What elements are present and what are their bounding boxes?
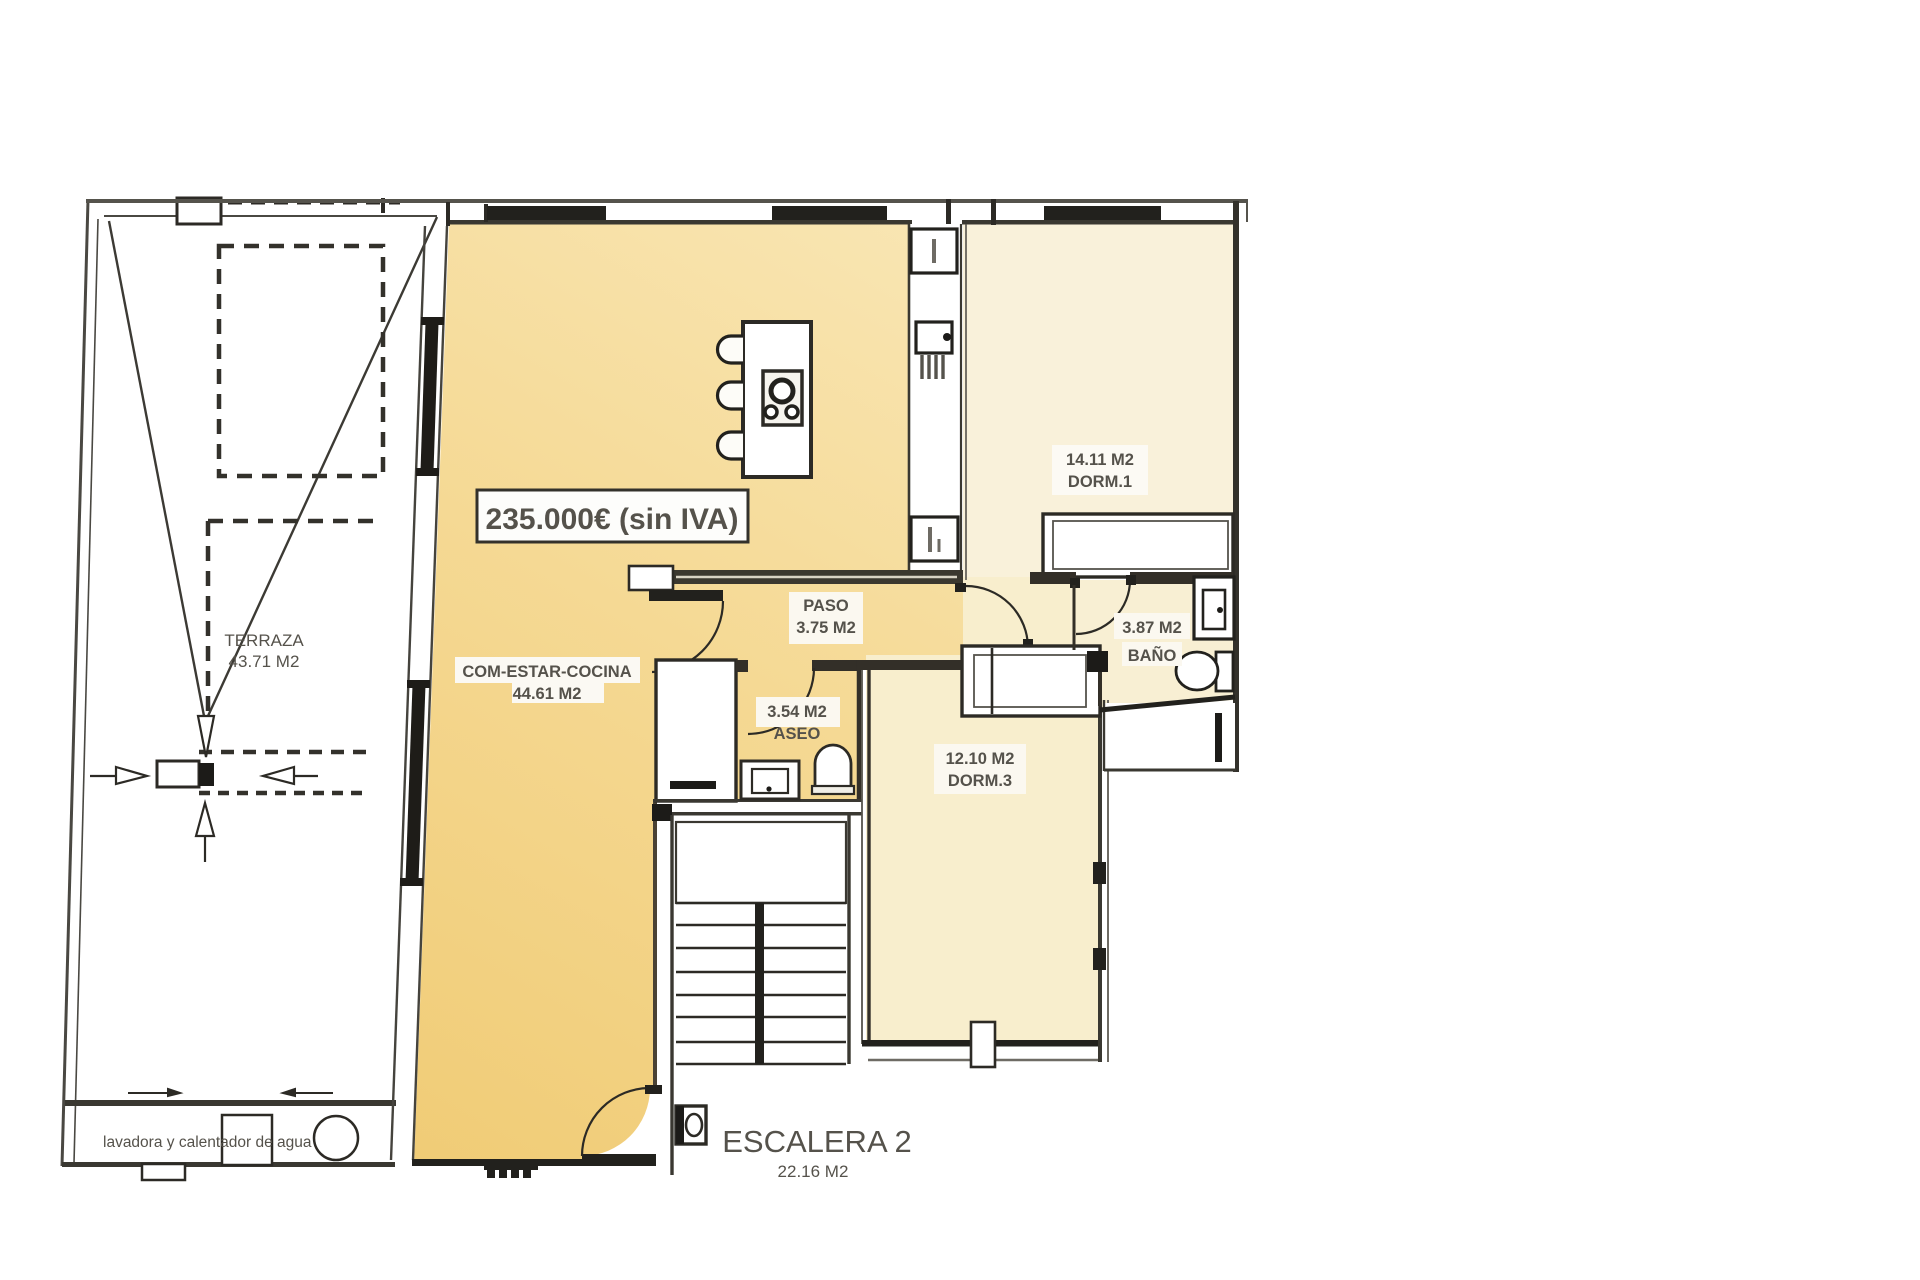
svg-text:DORM.3: DORM.3 [948,772,1012,790]
svg-text:3.87 M2: 3.87 M2 [1122,619,1182,637]
svg-text:22.16 M2: 22.16 M2 [778,1162,849,1181]
svg-text:3.75 M2: 3.75 M2 [796,619,856,637]
svg-text:COM-ESTAR-COCINA: COM-ESTAR-COCINA [462,663,631,681]
svg-text:14.11 M2: 14.11 M2 [1066,451,1134,469]
svg-text:3.54 M2: 3.54 M2 [767,703,827,721]
svg-text:12.10 M2: 12.10 M2 [946,750,1015,768]
svg-text:43.71 M2: 43.71 M2 [229,652,300,671]
svg-text:TERRAZA: TERRAZA [224,631,304,650]
svg-text:ESCALERA 2: ESCALERA 2 [722,1124,912,1159]
svg-text:BAÑO: BAÑO [1128,645,1177,665]
svg-text:PASO: PASO [803,597,849,615]
svg-text:lavadora y calentador de agua: lavadora y calentador de agua [103,1134,312,1151]
svg-text:44.61 M2: 44.61 M2 [513,685,582,703]
svg-text:ASEO: ASEO [774,725,821,743]
svg-text:235.000€ (sin IVA): 235.000€ (sin IVA) [486,503,739,536]
svg-text:DORM.1: DORM.1 [1068,473,1132,491]
